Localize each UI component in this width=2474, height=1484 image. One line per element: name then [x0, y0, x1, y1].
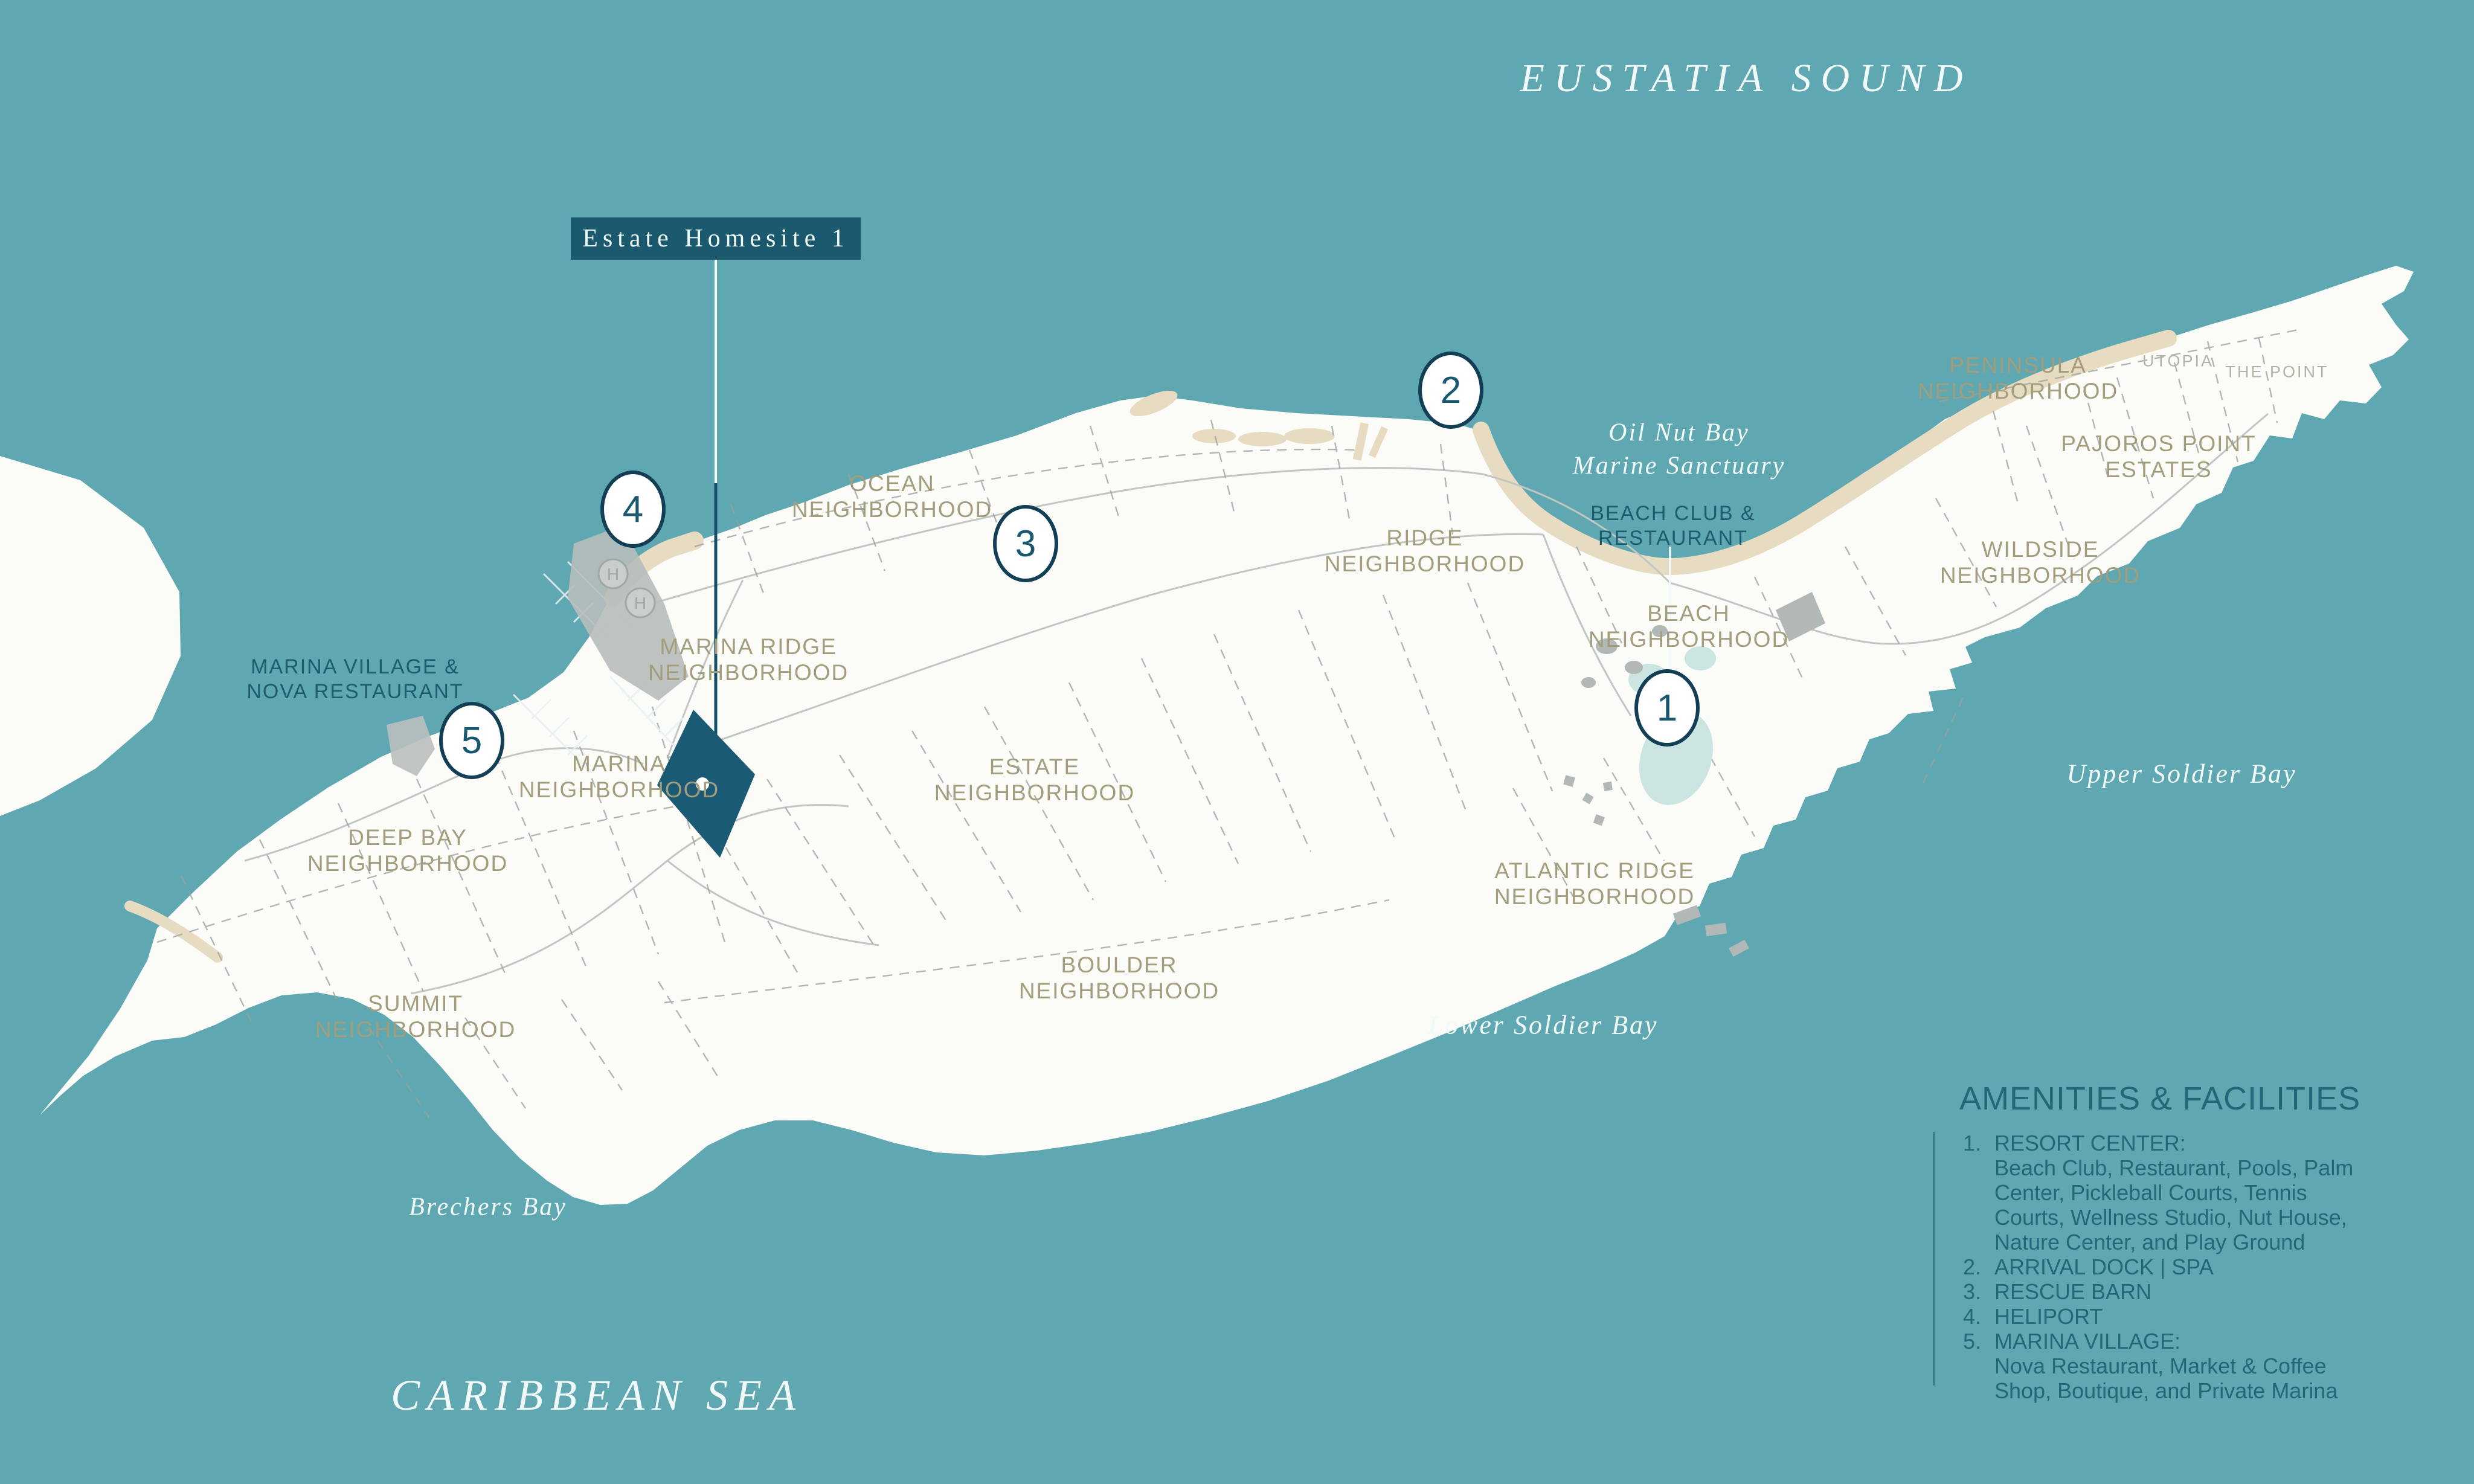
label-atlantic-ridge-neighborhood: ATLANTIC RIDGE NEIGHBORHOOD [1494, 858, 1695, 910]
label-marina-neighborhood: MARINA NEIGHBORHOOD [519, 751, 719, 803]
legend-item-number: 3. [1963, 1279, 1994, 1304]
marker-2-arrival-dock-spa[interactable]: 2 [1418, 352, 1483, 429]
legend-item-number: 2. [1963, 1254, 1994, 1279]
sea-label-caribbean-sea: CARIBBEAN SEA [391, 1367, 803, 1424]
legend-item-text: RESORT CENTER: Beach Club, Restaurant, P… [1994, 1131, 2353, 1254]
label-beach-club-restaurant: BEACH CLUB & RESTAURANT [1590, 501, 1755, 551]
legend-item-rescue-barn: 3. RESCUE BARN [1963, 1279, 2404, 1304]
heliport-h2-label: H [634, 594, 646, 612]
sea-label-brechers-bay: Brechers Bay [409, 1191, 567, 1224]
sea-label-eustatia-sound: EUSTATIA SOUND [1520, 53, 1973, 104]
label-marina-ridge-neighborhood: MARINA RIDGE NEIGHBORHOOD [648, 634, 849, 686]
sea-label-lower-soldier-bay: Lower Soldier Bay [1428, 1007, 1659, 1042]
label-ridge-neighborhood: RIDGE NEIGHBORHOOD [1325, 525, 1525, 577]
marker-1-resort-center[interactable]: 1 [1634, 669, 1700, 747]
label-peninsula-neighborhood: PENINSULA NEIGHBORHOOD [1918, 353, 2118, 405]
legend-rule [1933, 1132, 1935, 1386]
label-summit-neighborhood: SUMMIT NEIGHBORHOOD [315, 991, 516, 1043]
label-estate-neighborhood: ESTATE NEIGHBORHOOD [934, 754, 1135, 806]
legend-item-number: 1. [1963, 1131, 1994, 1254]
label-beach-neighborhood: BEACH NEIGHBORHOOD [1589, 601, 1789, 653]
label-pajoros-point-estates: PAJOROS POINT ESTATES [2061, 431, 2256, 483]
estate-homesite-callout: Estate Homesite 1 [571, 217, 861, 260]
heliport-h1-label: H [607, 565, 619, 583]
amenities-legend: AMENITIES & FACILITIES 1. RESORT CENTER:… [1933, 1080, 2404, 1403]
sea-label-upper-soldier-bay: Upper Soldier Bay [2067, 756, 2297, 791]
marker-4-heliport[interactable]: 4 [600, 471, 666, 548]
legend-item-number: 4. [1963, 1304, 1994, 1329]
sea-label-oil-nut-bay: Oil Nut Bay Marine Sanctuary [1573, 416, 1785, 482]
label-utopia: UTOPIA [2142, 352, 2214, 371]
atlantic-ridge-buildings [1673, 905, 1749, 957]
label-boulder-neighborhood: BOULDER NEIGHBORHOOD [1019, 952, 1219, 1004]
label-the-point: THE POINT [2225, 363, 2328, 382]
west-landmass [0, 456, 181, 816]
label-wildside-neighborhood: WILDSIDE NEIGHBORHOOD [1940, 537, 2141, 589]
label-marina-village-nova: MARINA VILLAGE & NOVA RESTAURANT [246, 655, 463, 704]
label-ocean-neighborhood: OCEAN NEIGHBORHOOD [792, 471, 992, 523]
legend-title: AMENITIES & FACILITIES [1959, 1080, 2404, 1117]
label-deep-bay-neighborhood: DEEP BAY NEIGHBORHOOD [307, 825, 508, 877]
marker-5-marina-village[interactable]: 5 [439, 702, 504, 779]
legend-item-text: MARINA VILLAGE: Nova Restaurant, Market … [1994, 1329, 2337, 1403]
legend-item-heliport: 4. HELIPORT [1963, 1304, 2404, 1329]
legend-item-text: RESCUE BARN [1994, 1279, 2151, 1304]
legend-item-number: 5. [1963, 1329, 1994, 1403]
legend-item-resort-center: 1. RESORT CENTER: Beach Club, Restaurant… [1963, 1131, 2404, 1254]
legend-item-text: ARRIVAL DOCK | SPA [1994, 1254, 2214, 1279]
legend-item-text: HELIPORT [1994, 1304, 2103, 1329]
legend-item-arrival-dock: 2. ARRIVAL DOCK | SPA [1963, 1254, 2404, 1279]
island-map: H H EUSTATIA SOUND CARIBBEAN SEA Oil Nut [0, 0, 2474, 1484]
marker-3-rescue-barn[interactable]: 3 [993, 505, 1058, 582]
legend-item-marina-village: 5. MARINA VILLAGE: Nova Restaurant, Mark… [1963, 1329, 2404, 1403]
